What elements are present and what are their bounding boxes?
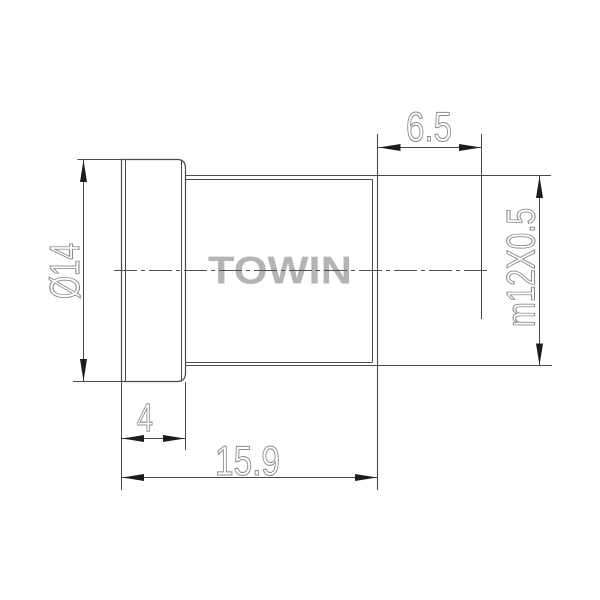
svg-text:15.9: 15.9 [215, 437, 280, 484]
svg-text:4: 4 [137, 396, 153, 440]
svg-text:Ø14: Ø14 [41, 243, 88, 299]
svg-text:6.5: 6.5 [406, 103, 452, 150]
svg-text:m12X0.5: m12X0.5 [500, 208, 544, 327]
